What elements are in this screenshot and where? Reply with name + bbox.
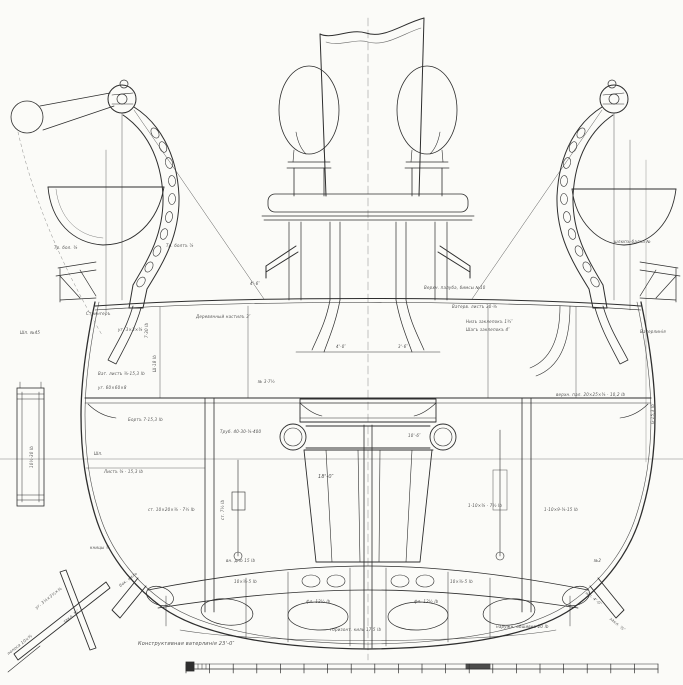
boat-davit-right — [557, 80, 628, 364]
vent-trunk-right — [530, 306, 570, 376]
bilge-keel-right — [590, 578, 624, 618]
ventilator-cowl-right — [397, 66, 457, 196]
hold-fittings — [232, 430, 507, 560]
bilge-keel-left — [112, 578, 146, 618]
blueprint-sheet: Деревянный настилъ 3″Верхн. палуба, бимс… — [0, 0, 683, 685]
boat-section-right — [572, 140, 676, 462]
hull-inner-plating — [85, 302, 651, 644]
boat-section-left — [48, 150, 164, 312]
funnel — [320, 18, 424, 196]
deck-edge-truss-left — [56, 262, 96, 302]
ventilator-cowl-left — [279, 66, 339, 196]
swung-boom-phantom — [11, 93, 114, 335]
scale-bar — [186, 662, 658, 673]
midship-section-drawing — [0, 0, 683, 685]
wing-bulkheads — [86, 398, 531, 612]
armor-plate-detail — [17, 382, 44, 506]
boat-davit-left — [108, 80, 179, 364]
bilge-keel-detail — [8, 570, 110, 672]
